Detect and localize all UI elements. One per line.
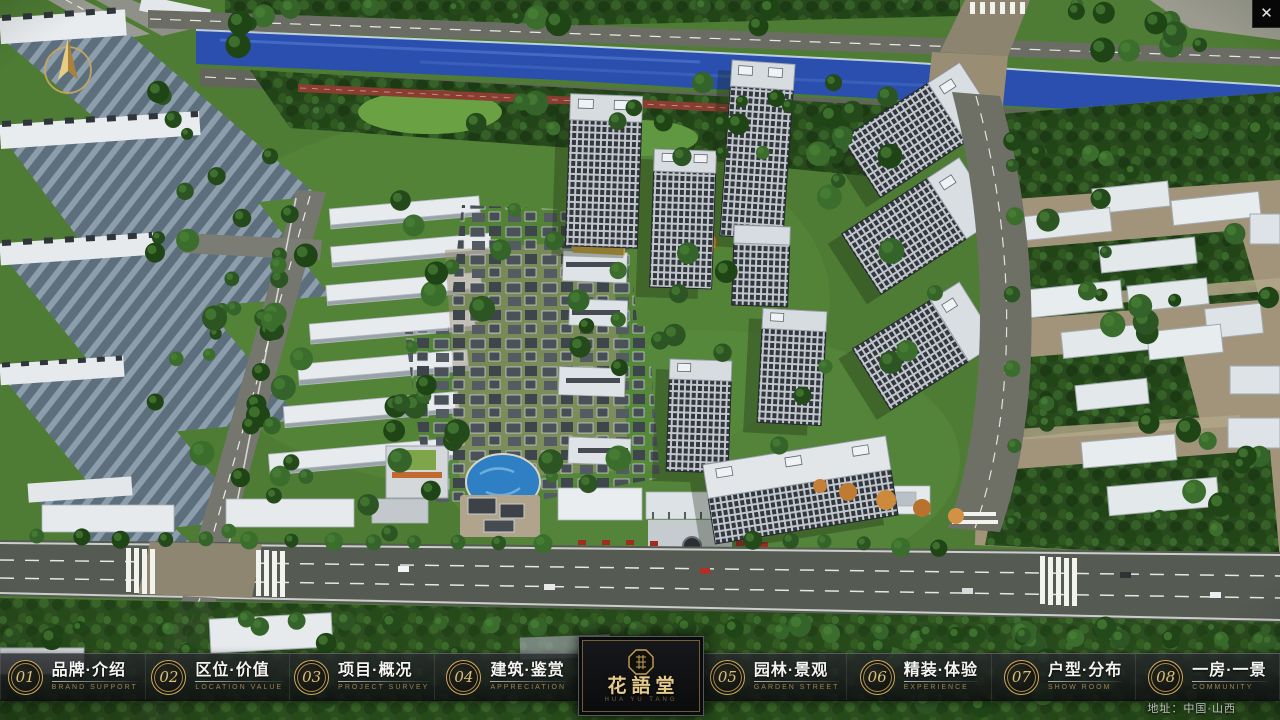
close-icon: ✕: [1260, 5, 1273, 22]
nav-item-labels: 精装·体验 EXPERIENCE: [904, 662, 978, 692]
presentation-window: ✕ 01 品牌·介绍 BRAND SUPPORT 02 区位·价值 LOCATI…: [0, 0, 1280, 720]
nav-label-zh: 品牌·介绍: [52, 662, 126, 679]
nav-item-labels: 户型·分布 SHOW ROOM: [1048, 662, 1122, 692]
nav-label-divider: [490, 681, 566, 682]
nav-item-floorplan[interactable]: 07 户型·分布 SHOW ROOM: [991, 654, 1135, 700]
nav-label-zh: 项目·概况: [338, 662, 412, 679]
nav-item-labels: 一房·一景 COMMUNITY: [1192, 662, 1266, 692]
logo-subtitle: HUA YU TANG: [604, 697, 677, 703]
nav-label-divider: [1048, 681, 1122, 682]
logo-title: 花語堂: [602, 676, 679, 696]
item-number-badge: 01: [8, 660, 43, 695]
nav-item-location[interactable]: 02 区位·价值 LOCATION VALUE: [145, 654, 290, 700]
nav-label-en: PROJECT SURVEY: [338, 684, 429, 692]
nav-label-divider: [904, 681, 978, 682]
nav-item-garden[interactable]: 05 园林·景观 GARDEN STREET: [702, 654, 846, 700]
nav-label-divider: [1192, 681, 1266, 682]
seal-emblem-icon: [628, 649, 654, 675]
nav-item-architecture[interactable]: 04 建筑·鉴赏 APPRECIATION: [434, 654, 579, 700]
nav-label-en: APPRECIATION: [490, 684, 566, 692]
close-button[interactable]: ✕: [1252, 0, 1280, 28]
nav-item-brand[interactable]: 01 品牌·介绍 BRAND SUPPORT: [0, 654, 145, 700]
nav-label-zh: 区位·价值: [195, 662, 269, 679]
nav-label-zh: 园林·景观: [754, 662, 828, 679]
item-number-badge: 08: [1148, 660, 1183, 695]
nav-label-divider: [195, 681, 283, 682]
item-number-badge: 02: [151, 660, 186, 695]
nav-item-interior[interactable]: 06 精装·体验 EXPERIENCE: [846, 654, 990, 700]
nav-label-en: EXPERIENCE: [904, 684, 969, 692]
item-number-badge: 06: [860, 660, 895, 695]
nav-item-labels: 品牌·介绍 BRAND SUPPORT: [52, 662, 138, 692]
nav-item-project[interactable]: 03 项目·概况 PROJECT SURVEY: [289, 654, 434, 700]
nav-item-labels: 建筑·鉴赏 APPRECIATION: [490, 662, 566, 692]
nav-label-zh: 建筑·鉴赏: [490, 662, 564, 679]
item-number-badge: 07: [1004, 660, 1039, 695]
nav-label-divider: [338, 681, 429, 682]
project-logo[interactable]: 花語堂 HUA YU TANG: [578, 636, 704, 716]
nav-label-en: SHOW ROOM: [1048, 684, 1112, 692]
nav-label-zh: 一房·一景: [1192, 662, 1266, 679]
nav-label-divider: [52, 681, 138, 682]
item-number-badge: 05: [710, 660, 745, 695]
nav-label-divider: [754, 681, 840, 682]
nav-item-community[interactable]: 08 一房·一景 COMMUNITY: [1135, 654, 1280, 700]
nav-group-left: 01 品牌·介绍 BRAND SUPPORT 02 区位·价值 LOCATION…: [0, 654, 578, 700]
nav-label-en: GARDEN STREET: [754, 684, 840, 692]
nav-label-zh: 户型·分布: [1048, 662, 1122, 679]
nav-group-right: 05 园林·景观 GARDEN STREET 06 精装·体验 EXPERIEN…: [702, 654, 1280, 700]
nav-label-en: BRAND SUPPORT: [52, 684, 138, 692]
nav-label-zh: 精装·体验: [904, 662, 978, 679]
nav-label-en: COMMUNITY: [1192, 684, 1253, 692]
nav-item-labels: 项目·概况 PROJECT SURVEY: [338, 662, 429, 692]
masterplan-3d-render: [0, 0, 1280, 720]
nav-item-labels: 园林·景观 GARDEN STREET: [754, 662, 840, 692]
item-number-badge: 04: [446, 660, 481, 695]
nav-label-en: LOCATION VALUE: [195, 684, 283, 692]
project-address: 地址：中国·山西: [1147, 700, 1236, 716]
item-number-badge: 03: [294, 660, 329, 695]
nav-item-labels: 区位·价值 LOCATION VALUE: [195, 662, 283, 692]
